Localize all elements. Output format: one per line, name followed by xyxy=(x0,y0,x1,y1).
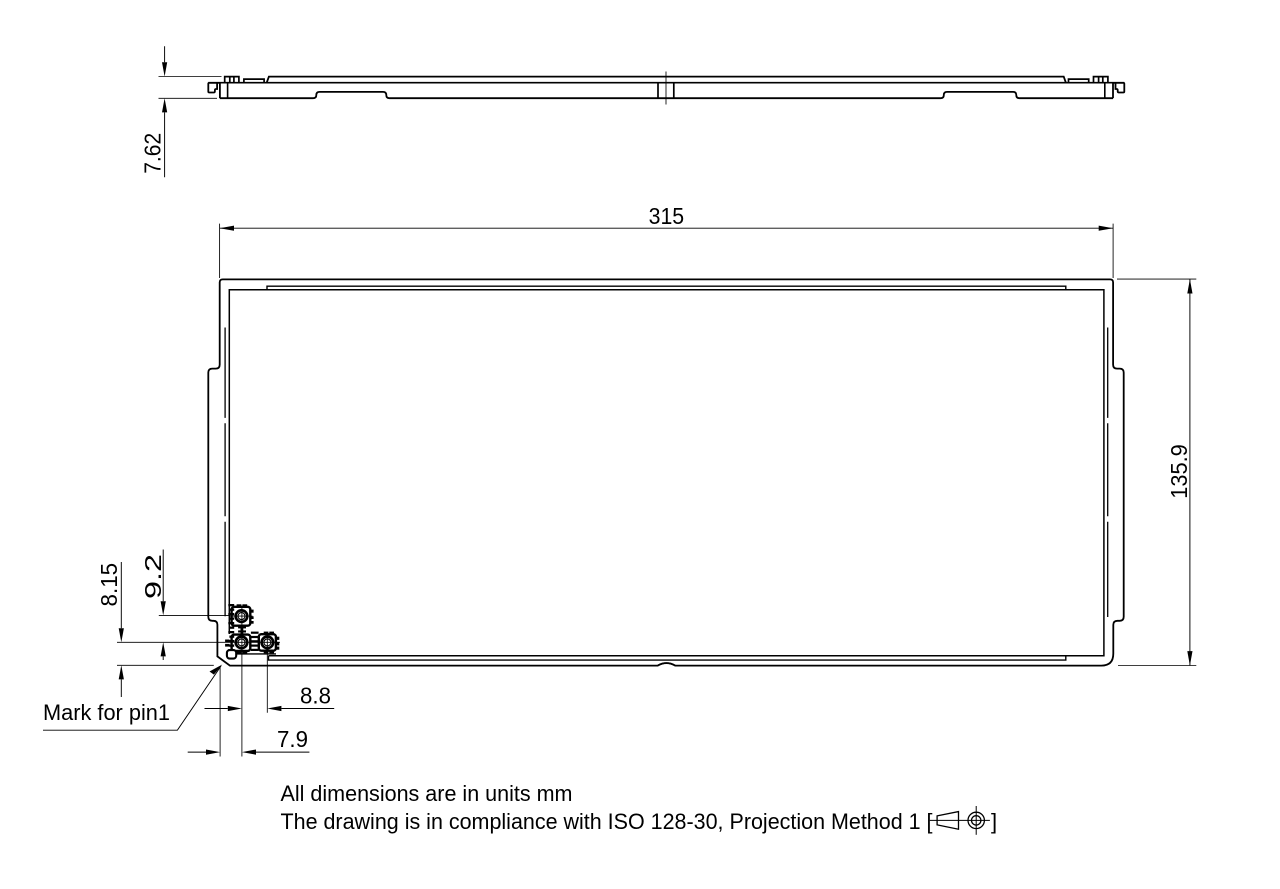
svg-text:7.62: 7.62 xyxy=(139,133,165,174)
svg-text:315: 315 xyxy=(649,203,685,229)
svg-text:135.9: 135.9 xyxy=(1166,444,1192,499)
svg-text:Mark for pin1: Mark for pin1 xyxy=(43,700,170,725)
svg-text:9.2: 9.2 xyxy=(140,554,166,599)
svg-text:]: ] xyxy=(991,809,997,834)
svg-text:8.15: 8.15 xyxy=(96,563,122,607)
svg-text:The drawing is in compliance w: The drawing is in compliance with ISO 12… xyxy=(281,809,933,834)
svg-text:8.8: 8.8 xyxy=(300,683,331,709)
svg-text:7.9: 7.9 xyxy=(277,726,308,752)
svg-text:All dimensions are in units mm: All dimensions are in units mm xyxy=(281,781,573,806)
